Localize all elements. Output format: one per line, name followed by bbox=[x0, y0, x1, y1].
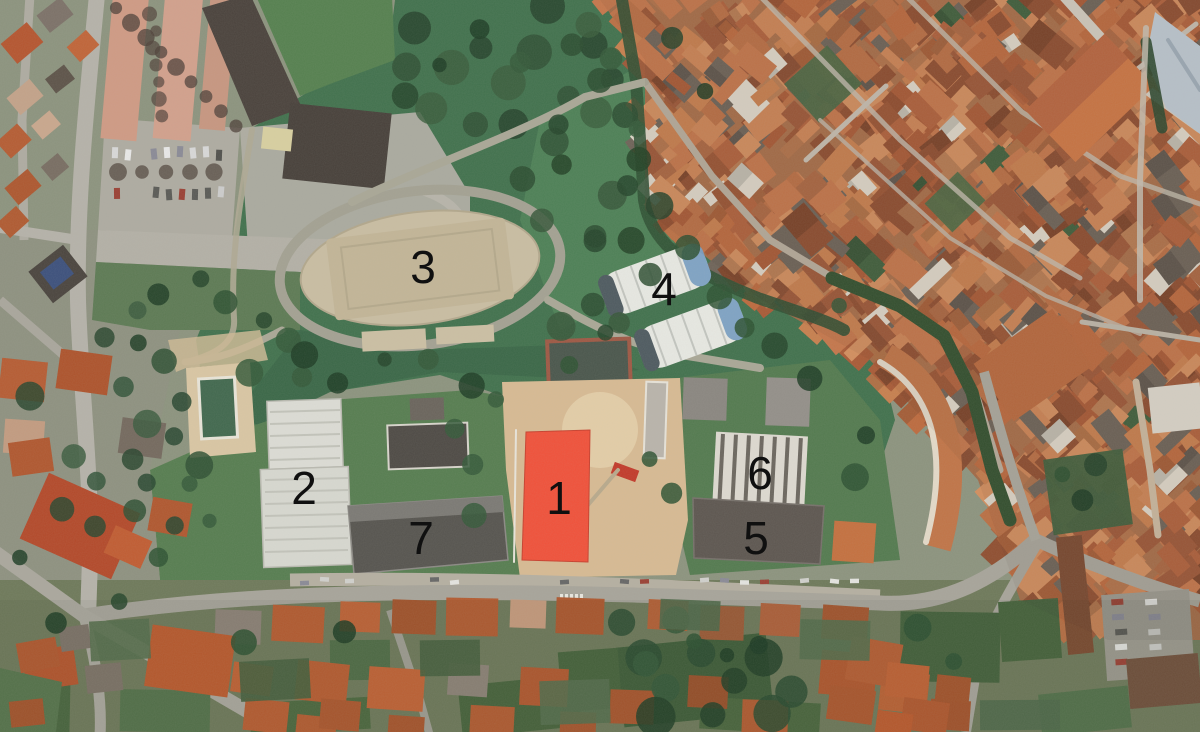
svg-text:2: 2 bbox=[291, 462, 317, 514]
svg-text:6: 6 bbox=[747, 447, 773, 499]
svg-text:4: 4 bbox=[651, 263, 677, 315]
svg-text:5: 5 bbox=[743, 512, 769, 564]
svg-text:3: 3 bbox=[410, 241, 436, 293]
svg-text:1: 1 bbox=[546, 472, 572, 524]
svg-text:7: 7 bbox=[408, 512, 434, 564]
